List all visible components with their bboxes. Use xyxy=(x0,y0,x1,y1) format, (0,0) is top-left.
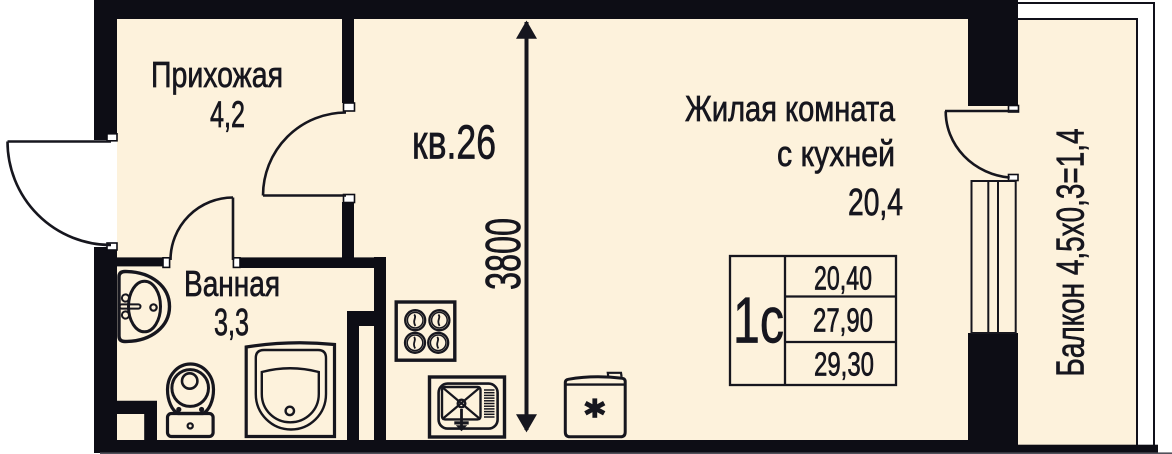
svg-text:с кухней: с кухней xyxy=(777,133,895,174)
svg-text:29,30: 29,30 xyxy=(814,347,874,384)
svg-text:20,4: 20,4 xyxy=(848,182,903,224)
svg-text:Прихожая: Прихожая xyxy=(151,54,283,95)
svg-text:20,40: 20,40 xyxy=(814,261,872,298)
svg-text:кв.26: кв.26 xyxy=(412,117,496,170)
svg-text:Балкон 4,5х0,3=1,4: Балкон 4,5х0,3=1,4 xyxy=(1050,129,1093,377)
svg-text:1с: 1с xyxy=(733,284,784,357)
svg-text:Жилая комната: Жилая комната xyxy=(685,88,896,129)
svg-text:27,90: 27,90 xyxy=(813,303,873,340)
svg-text:4,2: 4,2 xyxy=(210,94,245,135)
svg-text:Ванная: Ванная xyxy=(184,263,280,304)
svg-text:3,3: 3,3 xyxy=(214,302,249,344)
svg-text:3800: 3800 xyxy=(477,218,531,290)
